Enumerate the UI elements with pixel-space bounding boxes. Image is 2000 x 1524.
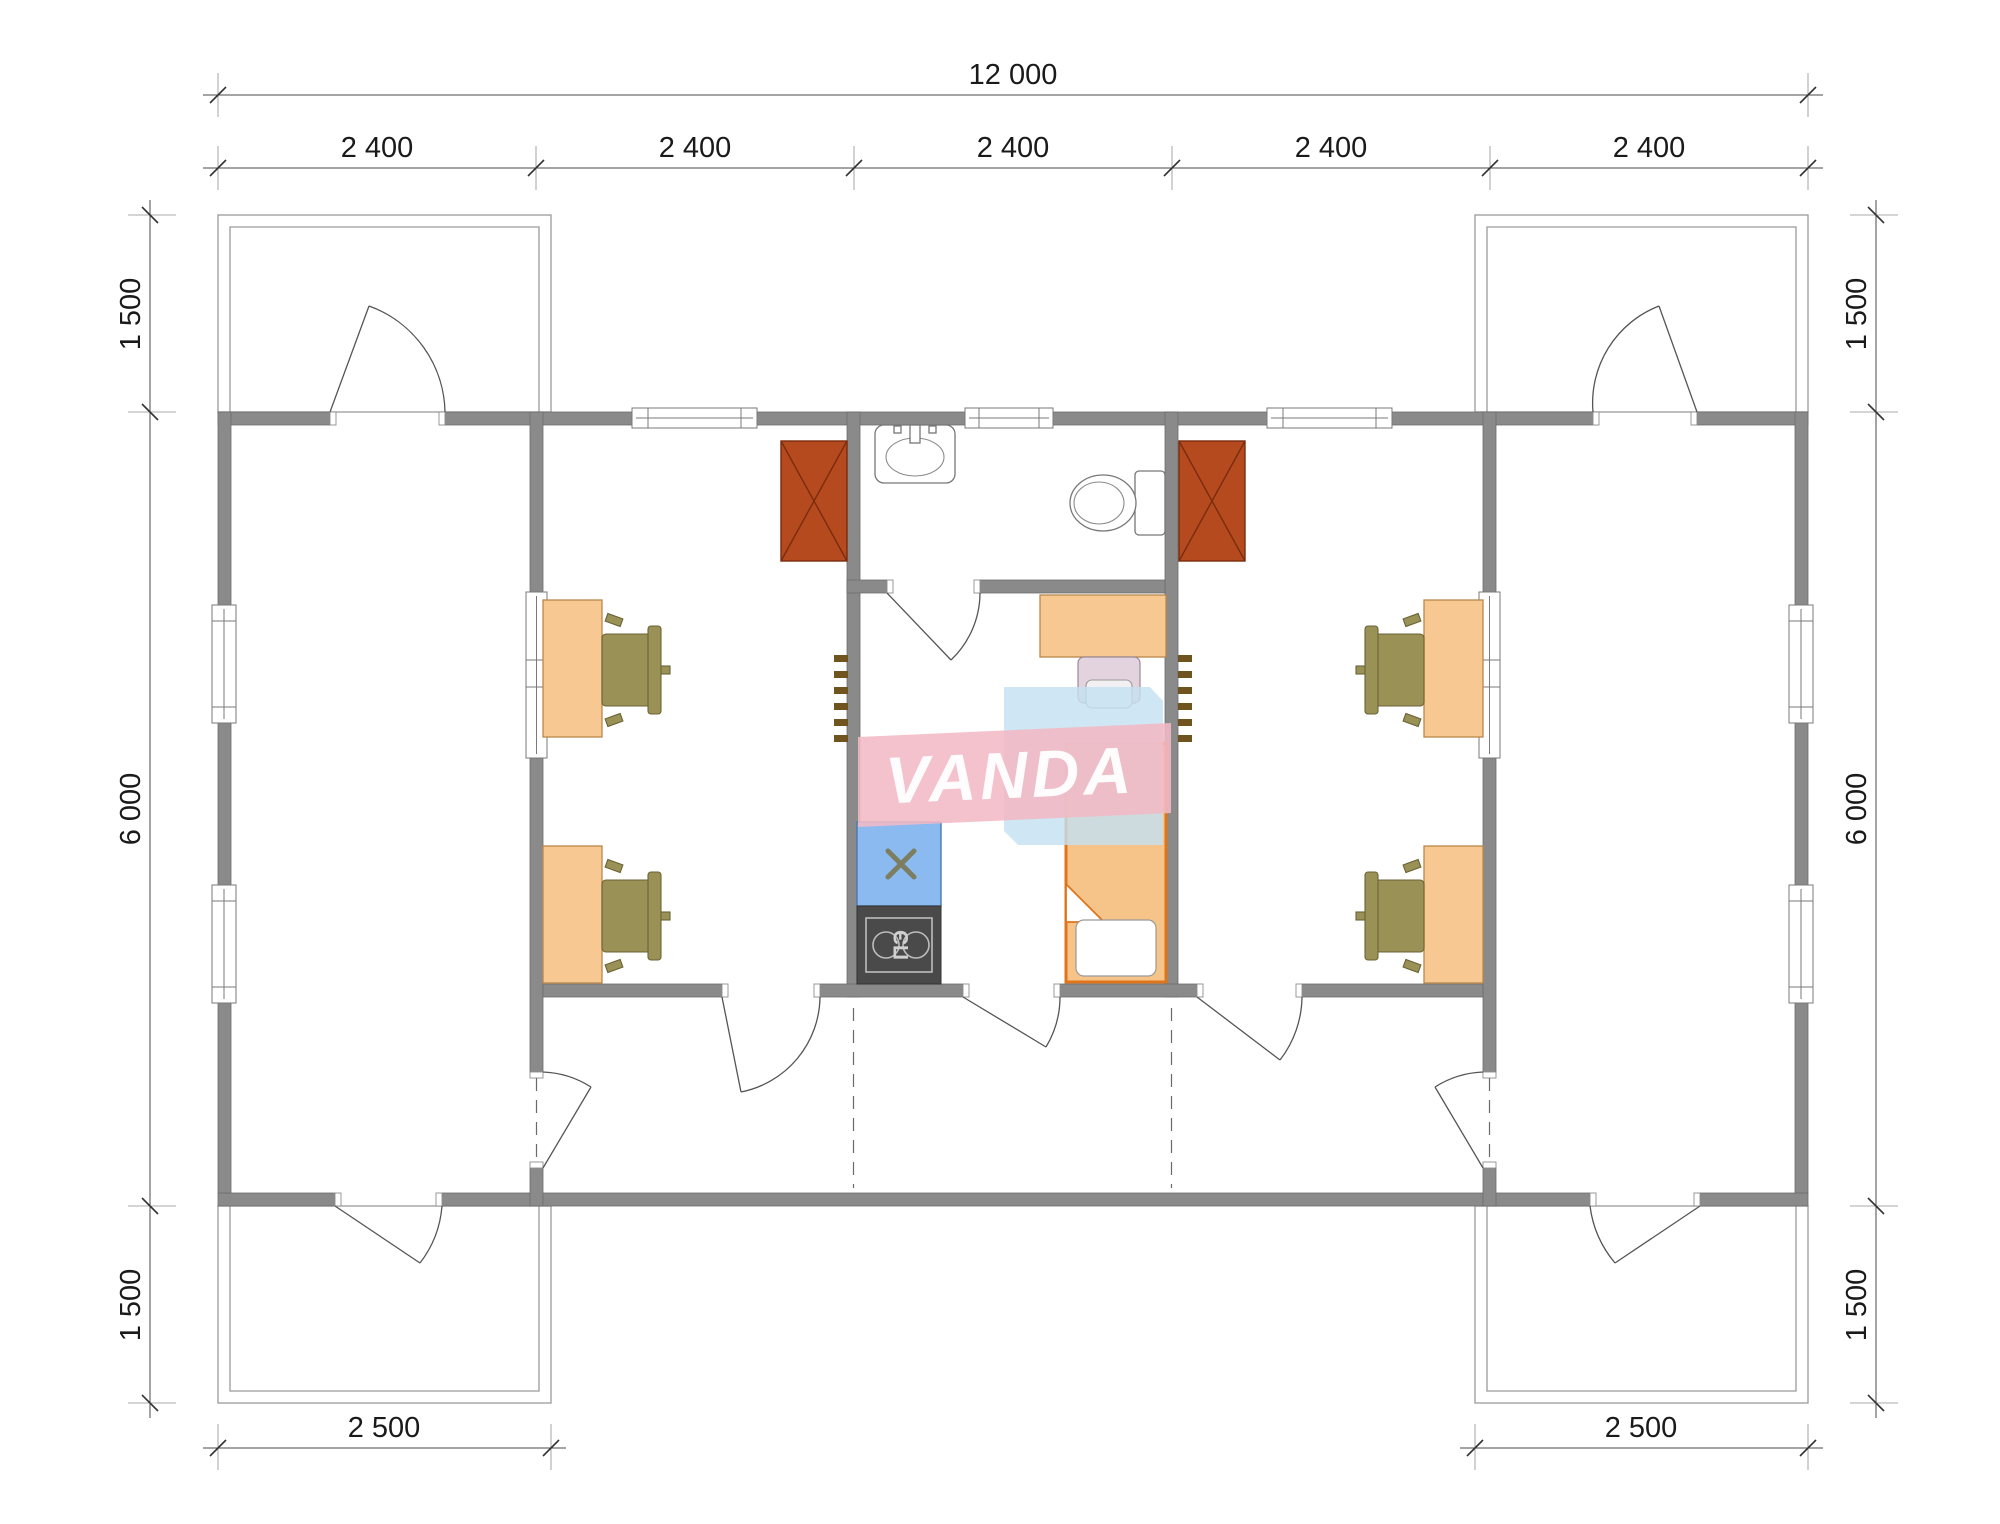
desk: [1040, 595, 1166, 657]
wall-segment: [218, 412, 231, 605]
wall-segment: [530, 1168, 543, 1206]
terrace-bottom-right-inner-rail: [1487, 1206, 1796, 1391]
chair: [1356, 860, 1424, 973]
window-right-wall-lower: [1789, 885, 1813, 1003]
terrace-top-right-inner-rail: [1487, 227, 1796, 412]
door-bathroom: [887, 593, 980, 660]
door-right-room-to-top-terrace: [1593, 306, 1697, 412]
dim-label-module: 2 400: [977, 132, 1050, 164]
terrace-top-left-inner-rail: [230, 227, 539, 412]
wall-segment: [530, 758, 543, 1072]
desk: [1424, 600, 1483, 737]
dimension-left: 1 500 6 000 1 500: [115, 200, 176, 1418]
wall-segment: [1697, 412, 1808, 425]
wall-segment: [218, 1193, 335, 1206]
wood-stove-right: [1179, 441, 1245, 561]
electric-stove: ПЭ: [857, 906, 941, 984]
ladder-left: [834, 655, 848, 742]
window-right-wall-upper: [1789, 605, 1813, 723]
watermark: VANDA: [858, 687, 1171, 845]
wall-segment: [1053, 412, 1267, 425]
door-left-room-to-top-terrace: [330, 306, 445, 412]
dim-label-bottom: 2 500: [1605, 1412, 1678, 1444]
toilet: [1070, 471, 1165, 535]
door-right-room-to-bottom-terrace: [1590, 1206, 1700, 1263]
desk: [543, 846, 602, 983]
wall-segment: [1700, 1193, 1808, 1206]
wall-segment: [847, 580, 887, 593]
chair: [1356, 614, 1424, 727]
terrace-bottom-left-inner-rail: [230, 1206, 539, 1391]
door-hall-to-left-room: [543, 1072, 591, 1168]
dim-label-bottom: 2 500: [348, 1412, 421, 1444]
dim-label-left: 1 500: [115, 1269, 147, 1342]
wall-segment: [757, 412, 965, 425]
wall-segment: [1302, 984, 1483, 997]
dim-label-right: 6 000: [1841, 773, 1873, 846]
dimension-bottom-right: 2 500: [1460, 1412, 1823, 1470]
wall-segment: [1795, 1003, 1808, 1193]
wall-segment: [218, 1003, 231, 1193]
wall-segment: [1795, 412, 1808, 605]
door-study-left-to-hall: [722, 997, 820, 1092]
window-room-right-top: [1267, 408, 1392, 428]
ladder-right: [1178, 655, 1192, 742]
wall-segment: [1483, 412, 1496, 592]
floor-plan-drawing: ПЭ: [0, 0, 2000, 1524]
terrace-bottom-left: [218, 1206, 551, 1403]
wall-segment: [1483, 758, 1496, 1072]
door-hall-to-right-room: [1435, 1072, 1483, 1168]
floor-plan-sheet: ПЭ: [0, 0, 2000, 1524]
dim-label-left: 6 000: [115, 773, 147, 846]
desk: [1424, 846, 1483, 983]
dimension-right: 1 500 6 000 1 500: [1841, 200, 1898, 1418]
wall-segment: [980, 580, 1165, 593]
dim-label-module: 2 400: [341, 132, 414, 164]
door-study-right-to-hall: [1197, 997, 1302, 1060]
wall-segment: [1060, 984, 1197, 997]
dim-label-left: 1 500: [115, 278, 147, 351]
terrace-top-right: [1475, 215, 1808, 412]
watermark-logo-text: VANDA: [884, 733, 1137, 818]
chair: [602, 860, 670, 973]
dim-label-module: 2 400: [1295, 132, 1368, 164]
wall-segment: [820, 984, 963, 997]
wall-segment: [218, 412, 330, 425]
window-bathroom-top: [965, 408, 1053, 428]
wall-segment: [543, 984, 722, 997]
window-room-left-top: [632, 408, 757, 428]
kitchen: ПЭ: [857, 822, 941, 984]
desk: [543, 600, 602, 737]
wall-segment: [218, 723, 231, 885]
dim-label-module: 2 400: [659, 132, 732, 164]
dimension-total-width: 12 000: [203, 59, 1823, 117]
dashed-lines: [537, 1008, 1490, 1188]
electric-stove-label: ПЭ: [890, 930, 913, 960]
wall-segment: [1483, 1168, 1496, 1206]
door-bedroom-to-hall: [963, 997, 1060, 1047]
dimension-modules: 2 400 2 400 2 400 2 400 2 400: [203, 132, 1823, 190]
dim-label-module: 2 400: [1613, 132, 1686, 164]
dim-label-total: 12 000: [969, 59, 1058, 91]
dimension-bottom-left: 2 500: [203, 1412, 566, 1470]
wood-stove-left: [781, 441, 847, 561]
sink: [875, 425, 955, 483]
door-left-room-to-bottom-terrace: [335, 1206, 442, 1263]
terrace-bottom-right: [1475, 1206, 1808, 1403]
window-left-wall-lower: [212, 885, 236, 1003]
wall-segment: [530, 412, 543, 592]
bathroom-fixtures: [875, 425, 1165, 535]
pillow: [1076, 920, 1156, 976]
window-left-wall-upper: [212, 605, 236, 723]
dim-label-right: 1 500: [1841, 278, 1873, 351]
chair: [602, 614, 670, 727]
dim-label-right: 1 500: [1841, 1269, 1873, 1342]
wall-segment: [442, 1193, 1590, 1206]
wall-segment: [1795, 723, 1808, 885]
